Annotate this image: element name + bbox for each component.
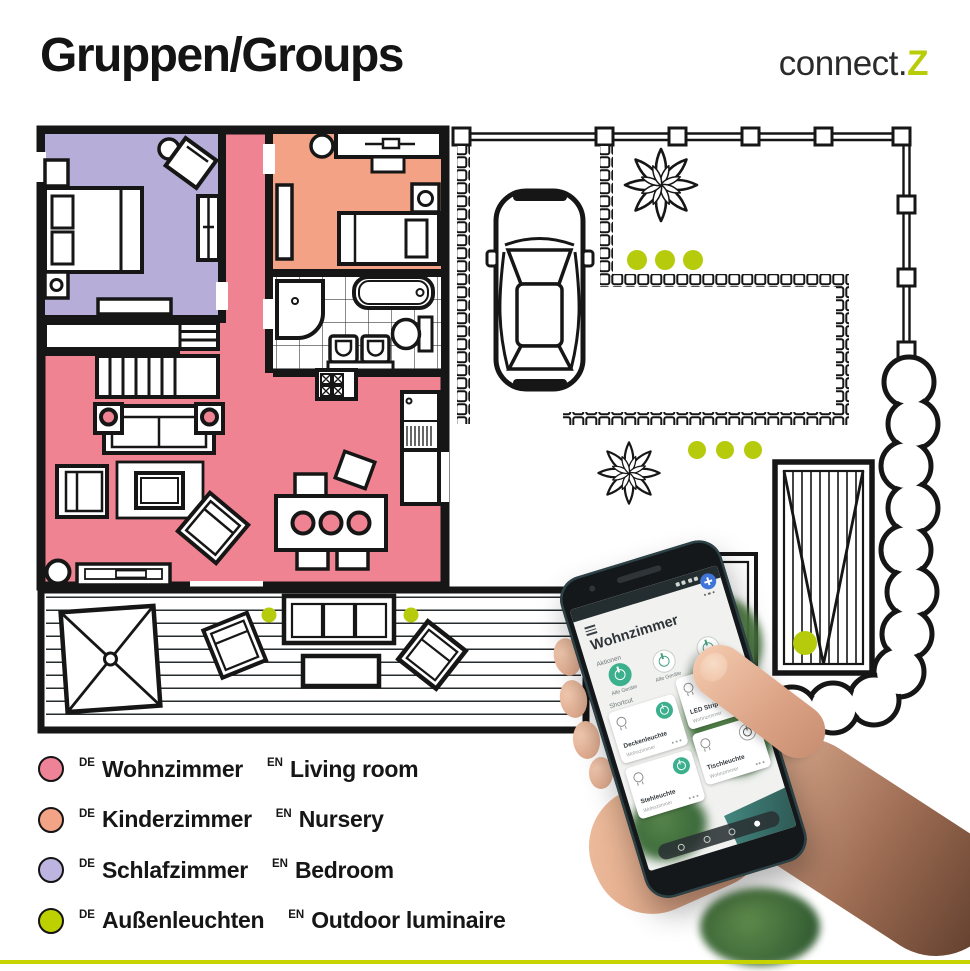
legend-item-bedroom: DE Schlafzimmer EN Bedroom xyxy=(38,845,505,896)
nav-icon[interactable] xyxy=(677,843,686,852)
nav-dot-icon[interactable] xyxy=(754,820,761,827)
legend-dot xyxy=(38,756,64,782)
nav-icon[interactable] xyxy=(728,827,737,836)
card-overflow-icon[interactable] xyxy=(755,761,764,766)
card-overflow-icon[interactable] xyxy=(689,795,698,800)
overflow-menu-icon[interactable] xyxy=(704,591,715,597)
terrace-table xyxy=(303,656,379,686)
plant-photo xyxy=(700,888,820,966)
table-plates xyxy=(293,513,370,534)
car xyxy=(487,191,593,389)
bulb-icon xyxy=(699,737,711,749)
plant-flower xyxy=(598,442,659,503)
bottom-accent-line xyxy=(0,960,970,964)
garden-gate xyxy=(775,462,872,673)
plant-flower xyxy=(625,149,697,221)
legend-item-outdoor: DE Außenleuchten EN Outdoor luminaire xyxy=(38,896,505,947)
legend-dot xyxy=(38,807,64,833)
legend: DE Wohnzimmer EN Living room DE Kinderzi… xyxy=(38,744,505,946)
bulb-icon xyxy=(615,716,627,728)
card-overflow-icon[interactable] xyxy=(672,739,681,744)
phone-camera xyxy=(588,585,595,592)
power-toggle-icon[interactable] xyxy=(653,700,674,721)
page: Gruppen/Groups connect.Z xyxy=(0,0,970,971)
legend-dot xyxy=(38,908,64,934)
nav-icon[interactable] xyxy=(702,835,711,844)
power-toggle-icon[interactable] xyxy=(670,755,691,776)
bulb-icon xyxy=(682,682,694,694)
phone-speaker xyxy=(616,565,662,584)
legend-dot xyxy=(38,857,64,883)
terrace-sofa xyxy=(284,596,394,643)
legend-item-nursery: DE Kinderzimmer EN Nursery xyxy=(38,795,505,846)
parasol xyxy=(61,606,161,712)
bulb-icon xyxy=(632,771,644,783)
legend-item-living-room: DE Wohnzimmer EN Living room xyxy=(38,744,505,795)
terrace xyxy=(41,590,586,730)
